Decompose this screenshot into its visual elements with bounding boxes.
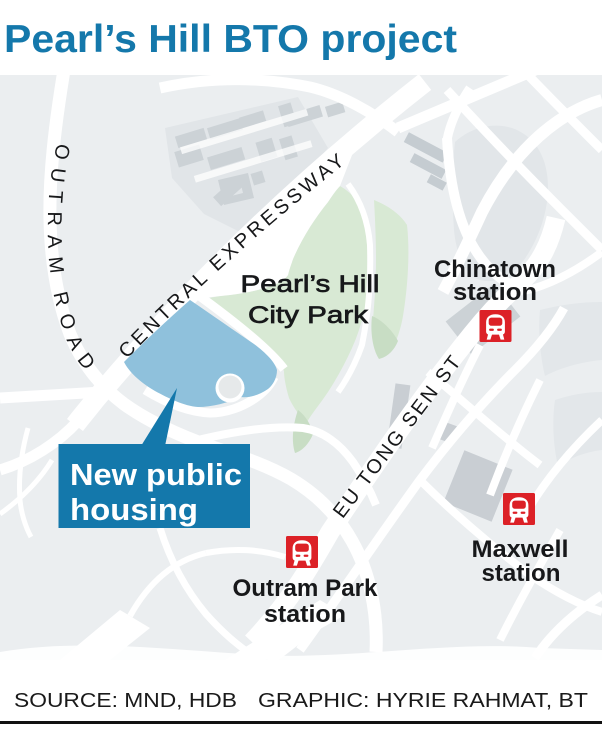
svg-text:housing: housing [70,492,198,527]
svg-text:station: station [453,279,537,306]
svg-text:station: station [264,601,346,628]
svg-text:Pearl’s Hill BTO project: Pearl’s Hill BTO project [4,18,457,61]
svg-text:SOURCE: MND, HDB: SOURCE: MND, HDB [14,690,237,712]
svg-text:New public: New public [70,457,242,492]
svg-text:Outram Park: Outram Park [233,575,379,602]
svg-text:Maxwell: Maxwell [472,536,569,563]
svg-text:City Park: City Park [248,302,369,329]
svg-text:GRAPHIC: HYRIE RAHMAT, BT: GRAPHIC: HYRIE RAHMAT, BT [258,690,588,712]
svg-text:Pearl’s Hill: Pearl’s Hill [241,271,380,298]
svg-text:station: station [482,560,561,587]
